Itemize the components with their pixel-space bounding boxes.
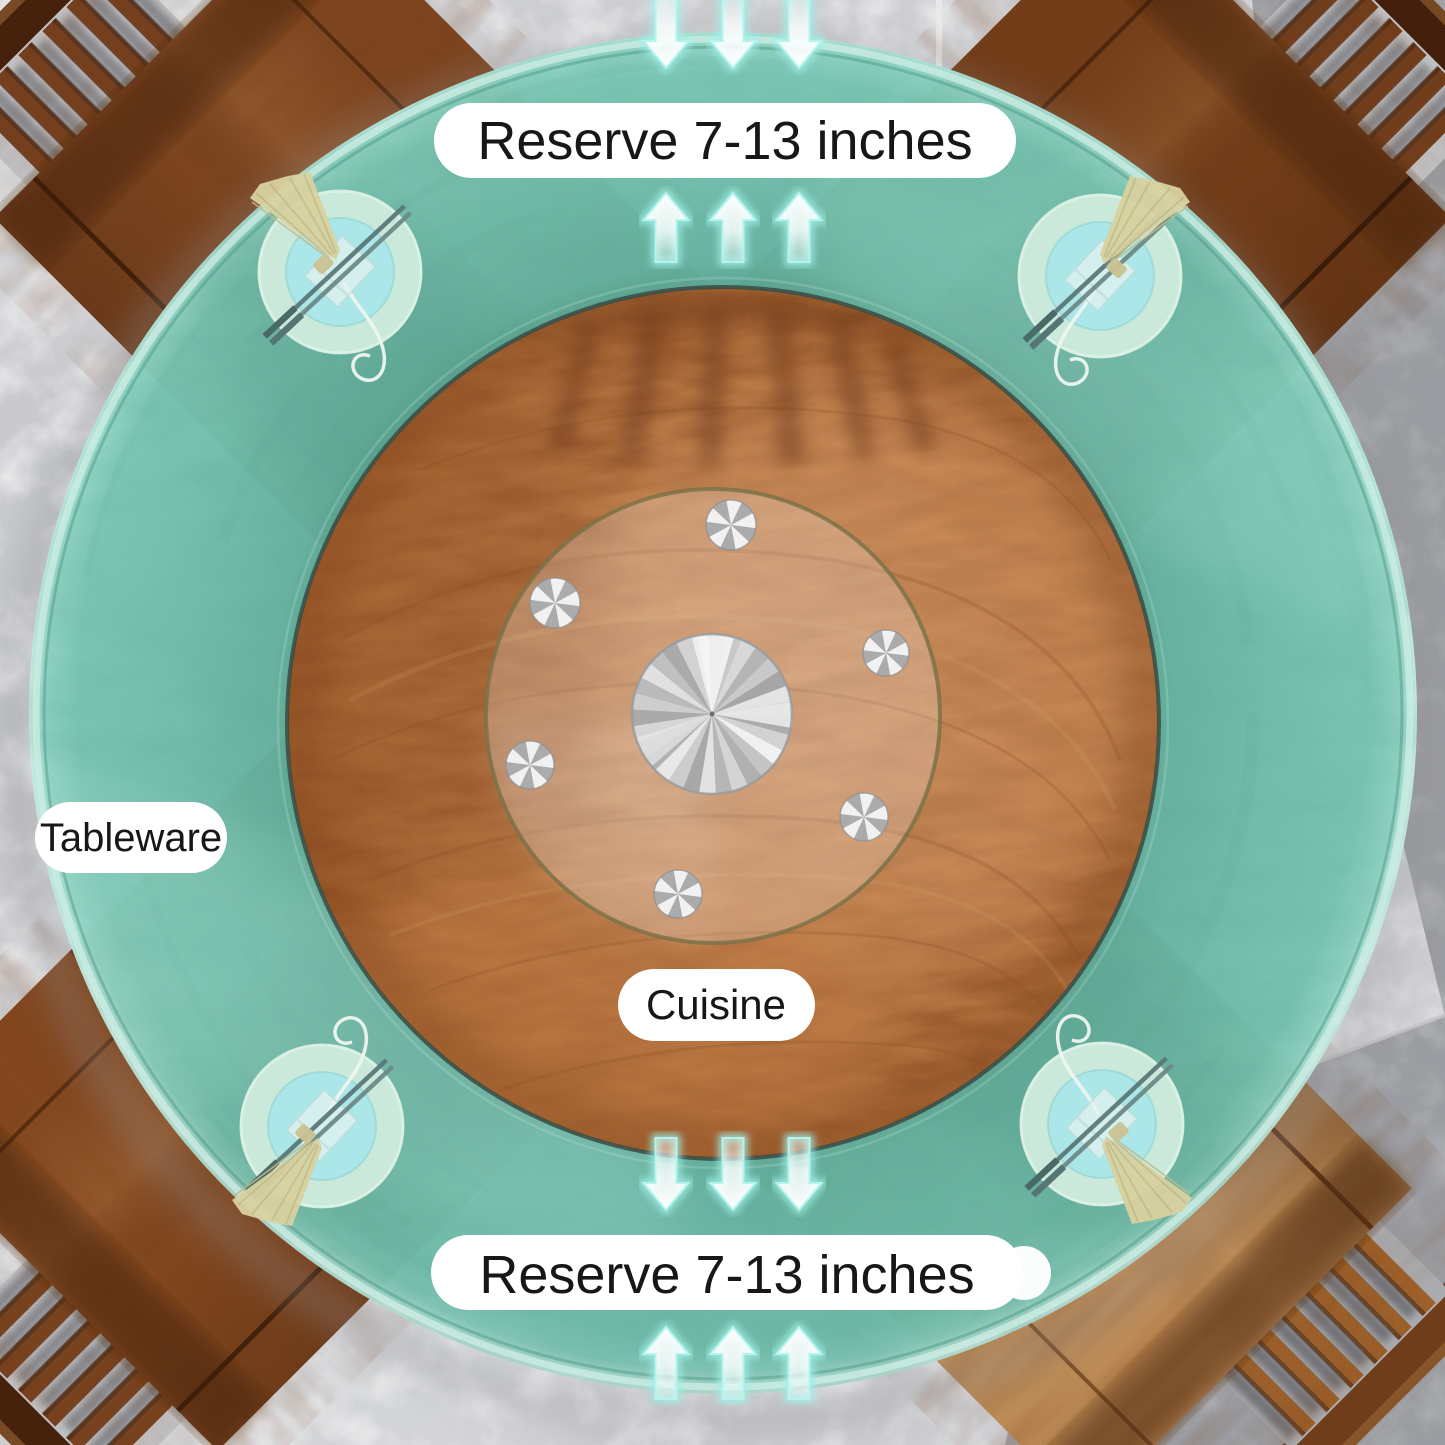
svg-text:Tableware: Tableware: [40, 816, 222, 860]
svg-text:Cuisine: Cuisine: [646, 981, 786, 1028]
svg-text:Reserve 7-13 inches: Reserve 7-13 inches: [477, 111, 972, 171]
svg-text:Reserve 7-13 inches: Reserve 7-13 inches: [479, 1245, 974, 1305]
